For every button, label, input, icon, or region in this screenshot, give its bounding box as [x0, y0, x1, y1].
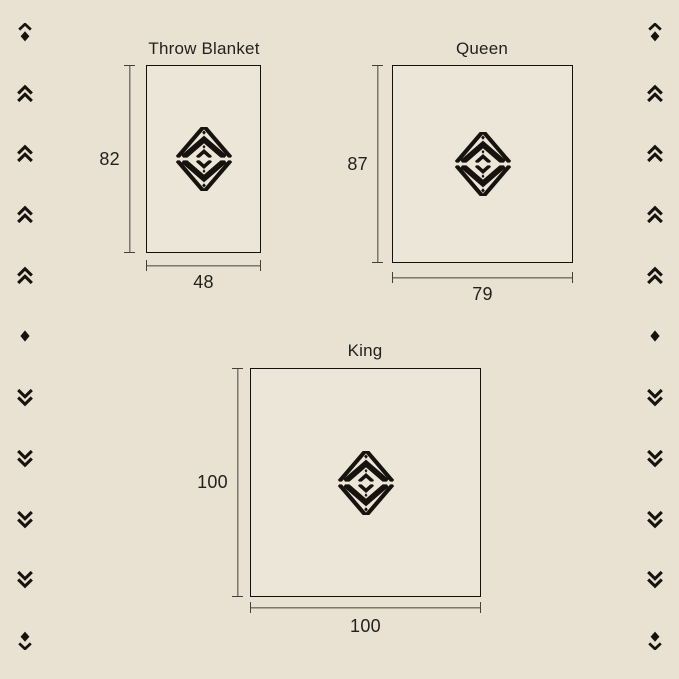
brand-emblem-icon [455, 132, 511, 196]
diamond-icon [15, 326, 35, 346]
left-ornament-column [15, 23, 35, 650]
double-chevron-up-icon [645, 144, 665, 164]
right-ornament-column [645, 23, 665, 650]
width-value: 100 [250, 616, 481, 637]
double-chevron-up-icon [645, 205, 665, 225]
height-value: 87 [330, 65, 368, 263]
diamond-icon [645, 326, 665, 346]
blanket-outline [392, 65, 573, 263]
width-value: 48 [146, 272, 261, 293]
double-chevron-up-icon [15, 84, 35, 104]
double-chevron-down-icon [645, 509, 665, 529]
diamond-chevron-down-icon [15, 630, 35, 650]
diamond-chevron-down-icon [645, 630, 665, 650]
chevron-up-diamond-icon [645, 23, 665, 43]
double-chevron-up-icon [645, 266, 665, 286]
height-value: 100 [186, 368, 228, 597]
double-chevron-down-icon [15, 448, 35, 468]
blanket-outline [146, 65, 261, 253]
brand-emblem-icon [176, 127, 232, 191]
double-chevron-up-icon [15, 205, 35, 225]
double-chevron-down-icon [645, 387, 665, 407]
double-chevron-down-icon [645, 569, 665, 589]
width-dimension-line [146, 260, 261, 271]
height-dimension-line [124, 65, 135, 253]
height-value: 82 [82, 65, 120, 253]
double-chevron-down-icon [15, 387, 35, 407]
diagram-title: Throw Blanket [116, 39, 292, 59]
double-chevron-up-icon [645, 84, 665, 104]
width-dimension-line [392, 272, 573, 283]
chevron-up-diamond-icon [15, 23, 35, 43]
blanket-outline [250, 368, 481, 597]
width-value: 79 [392, 284, 573, 305]
brand-emblem-icon [338, 451, 394, 515]
double-chevron-down-icon [15, 509, 35, 529]
double-chevron-up-icon [15, 144, 35, 164]
height-dimension-line [372, 65, 383, 263]
width-dimension-line [250, 602, 481, 613]
height-dimension-line [232, 368, 243, 597]
double-chevron-down-icon [645, 448, 665, 468]
diagram-title: Queen [402, 39, 562, 59]
size-chart-canvas: Throw Blanket 82 48 Queen 87 79 King 100… [0, 0, 679, 679]
double-chevron-down-icon [15, 569, 35, 589]
double-chevron-up-icon [15, 266, 35, 286]
diagram-title: King [285, 341, 445, 361]
